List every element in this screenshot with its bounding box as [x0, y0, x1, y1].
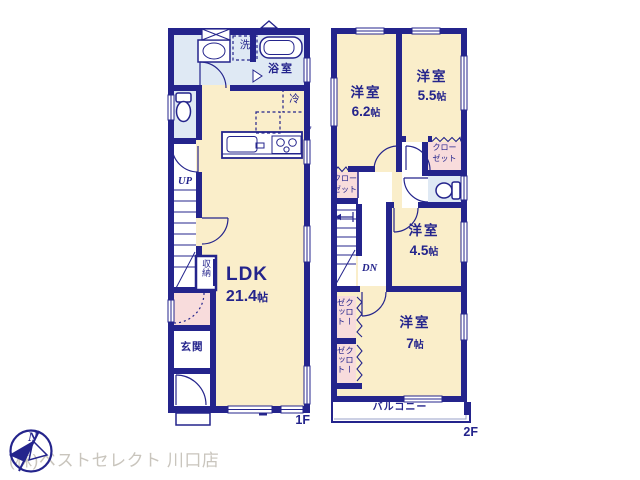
meter-mark: y — [305, 121, 312, 135]
label-closet-line1: クロー — [428, 144, 461, 152]
label-bedroom-4-5-size: 4.5帖 — [393, 243, 455, 259]
label-balcony: バルコニー — [350, 403, 450, 413]
bath-vent-icon — [261, 21, 277, 28]
size-unit: 帖 — [428, 247, 438, 258]
window — [461, 176, 467, 200]
wall — [422, 170, 461, 176]
wall — [331, 286, 360, 292]
ldk-size-number: 21.4 — [226, 288, 257, 305]
company-watermark: (株)ベストセレクト 川口店 — [9, 451, 219, 470]
wall — [168, 28, 310, 35]
window — [304, 366, 310, 404]
wall — [386, 202, 392, 292]
label-entrance: 玄関 — [174, 342, 210, 353]
wall — [331, 28, 467, 34]
ldk-size-unit: 帖 — [257, 292, 268, 304]
window — [356, 28, 384, 34]
size-number: 5.5 — [418, 88, 437, 103]
label-bedroom-5-5-size: 5.5帖 — [402, 88, 462, 104]
wall — [168, 325, 216, 331]
wall — [348, 166, 375, 172]
size-number: 4.5 — [410, 243, 429, 258]
window — [461, 314, 467, 340]
size-number: 6.2 — [352, 104, 371, 119]
label-fridge: 冷 — [283, 94, 306, 105]
window — [304, 226, 310, 262]
label-bedroom-7: 洋室 — [383, 316, 447, 330]
window — [168, 95, 174, 120]
window-hatch-icon — [202, 29, 230, 40]
wall — [418, 202, 461, 208]
label-closet-line2: ゼット — [428, 155, 461, 163]
label-closet-line1: クロー — [331, 175, 359, 183]
label-floor-1f: 1F — [280, 414, 310, 427]
label-bedroom-4-5: 洋室 — [393, 224, 455, 238]
closet-line2: ゼット — [337, 298, 346, 338]
north-label: N — [27, 429, 38, 444]
size-number: 7 — [406, 336, 414, 351]
wall — [386, 286, 461, 292]
label-stairs-up: UP — [175, 177, 195, 188]
wall — [174, 138, 196, 144]
label-bedroom-5-5: 洋室 — [402, 70, 462, 84]
toilet-icon — [436, 182, 460, 199]
size-unit: 帖 — [414, 340, 424, 351]
label-closet-vertical: クローゼット — [335, 346, 355, 382]
vent-mark — [259, 413, 267, 416]
wall — [230, 85, 304, 91]
wall — [331, 166, 334, 172]
label-closet-line2: ゼット — [331, 186, 359, 194]
label-closet-vertical: クローゼット — [335, 298, 355, 338]
floorplan-page: y — [0, 0, 640, 480]
closet-line1: クロー — [345, 346, 354, 382]
shoe-closet — [174, 293, 210, 325]
closet-line1: クロー — [345, 298, 354, 338]
wall — [331, 338, 356, 344]
window — [304, 58, 310, 82]
label-washer: 洗 — [233, 40, 257, 51]
label-bedroom-6-2: 洋室 — [336, 86, 396, 100]
label-bedroom-7-size: 7帖 — [383, 336, 447, 352]
label-bedroom-6-2-size: 6.2帖 — [336, 104, 396, 120]
label-bathroom: 浴室 — [260, 64, 302, 75]
floorplan-drawing: y — [0, 0, 640, 480]
wall — [331, 198, 358, 204]
floorplan-1f: y — [168, 21, 312, 425]
wall — [168, 28, 174, 413]
window — [168, 300, 174, 322]
label-ldk-size: 21.4帖 — [209, 289, 285, 305]
size-unit: 帖 — [370, 108, 380, 119]
window — [304, 140, 310, 164]
label-stairs-down: DN — [362, 264, 386, 275]
size-unit: 帖 — [436, 92, 446, 103]
window — [228, 406, 272, 413]
wall — [402, 136, 406, 142]
closet-line2: ゼット — [337, 346, 346, 382]
window — [412, 28, 440, 34]
label-storage: 収納 — [201, 259, 210, 277]
wall — [196, 172, 202, 218]
wall — [356, 204, 362, 256]
wall — [304, 28, 310, 413]
wall — [331, 383, 362, 389]
wall — [428, 136, 432, 142]
label-ldk: LDK — [213, 265, 281, 284]
window — [281, 406, 303, 413]
window — [461, 222, 467, 262]
wall — [196, 85, 202, 140]
toilet-icon — [176, 93, 191, 122]
kitchen-counter — [222, 132, 302, 158]
label-floor-2f: 2F — [448, 426, 478, 439]
entrance-step — [174, 368, 210, 374]
entrance-porch — [176, 413, 210, 425]
